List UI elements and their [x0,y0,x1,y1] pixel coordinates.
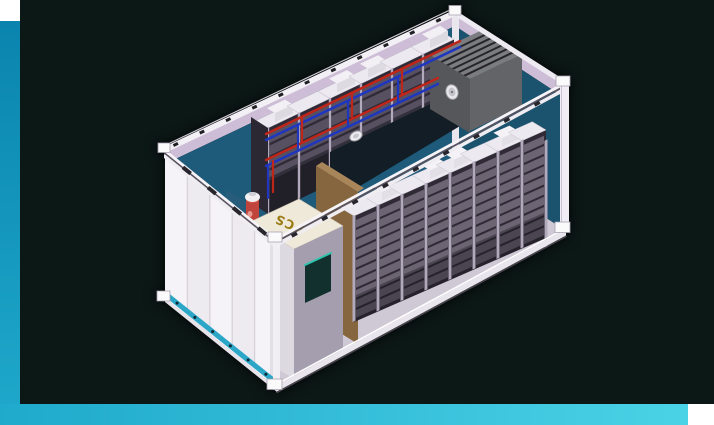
corner-casting [157,291,170,301]
corner-casting [556,76,570,86]
bess-container-3d-render: PCS [0,0,714,425]
corner-casting [449,6,461,16]
door-panel [210,186,232,352]
corner-casting [268,232,282,242]
slide-canvas: PCS [0,0,714,425]
corner-casting [267,379,282,390]
corner-casting [158,143,170,153]
corner-post-front-left [273,240,280,390]
corner-casting [555,222,570,233]
door-panel [232,204,254,370]
door-panel [187,168,209,334]
